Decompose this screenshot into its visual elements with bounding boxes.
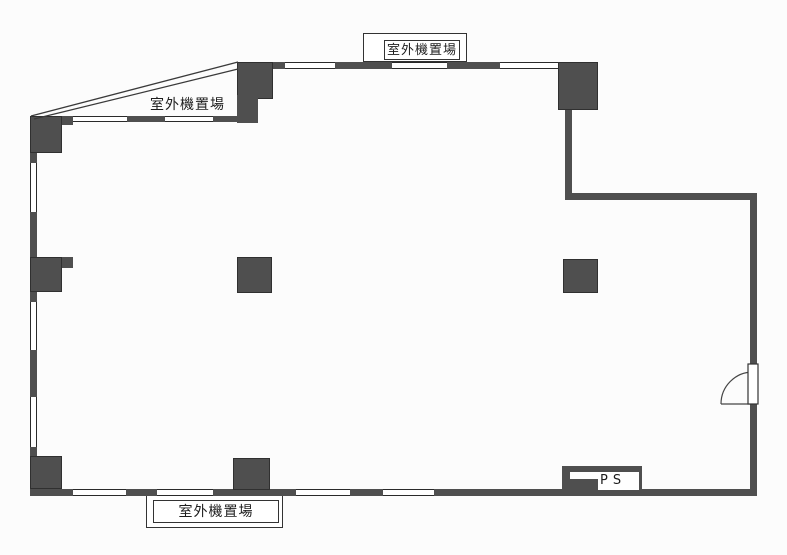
door-leaf <box>748 364 758 404</box>
diagonal-wall-and-door-arc <box>0 0 787 555</box>
pipe-shaft-label: PS <box>600 473 626 488</box>
outdoor-unit-label-left: 室外機置場 <box>150 94 225 114</box>
outdoor-unit-label-bottom: 室外機置場 <box>153 500 279 523</box>
floor-plan: PS 室外機置場 室外機置場 室外機置場 <box>0 0 787 555</box>
pipe-shaft-block <box>570 479 598 490</box>
outdoor-unit-label-top: 室外機置場 <box>384 40 460 60</box>
